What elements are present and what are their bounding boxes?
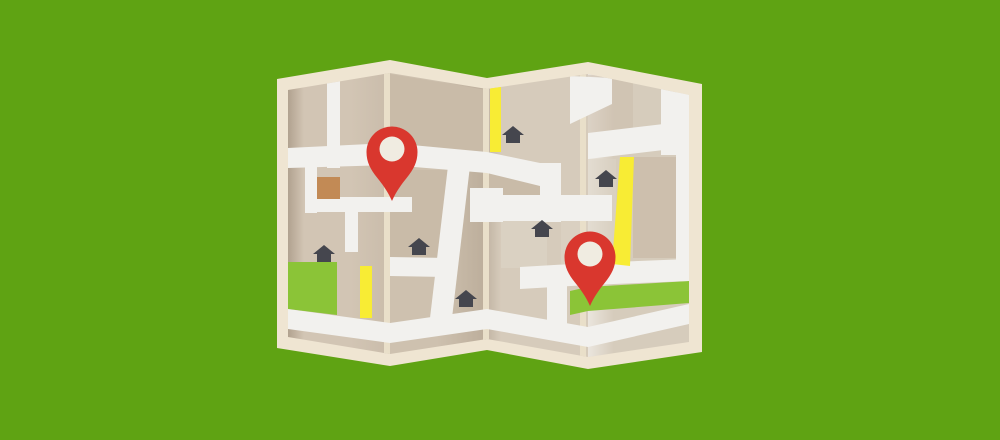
city-block: [633, 157, 676, 258]
road-segment: [470, 188, 503, 222]
yellow-road-west: [360, 266, 372, 318]
map-pin-hole: [578, 242, 603, 267]
building-block: [317, 177, 340, 199]
park-area-west: [288, 262, 337, 315]
road-segment: [313, 197, 412, 212]
map-content: [288, 60, 690, 370]
map-pin-hole: [380, 137, 405, 162]
road-segment: [547, 284, 567, 333]
road-segment: [345, 198, 358, 252]
map-illustration-canvas: [0, 0, 1000, 440]
road-segment: [390, 257, 448, 277]
map-illustration: [0, 0, 1000, 440]
yellow-road-center: [490, 84, 501, 152]
